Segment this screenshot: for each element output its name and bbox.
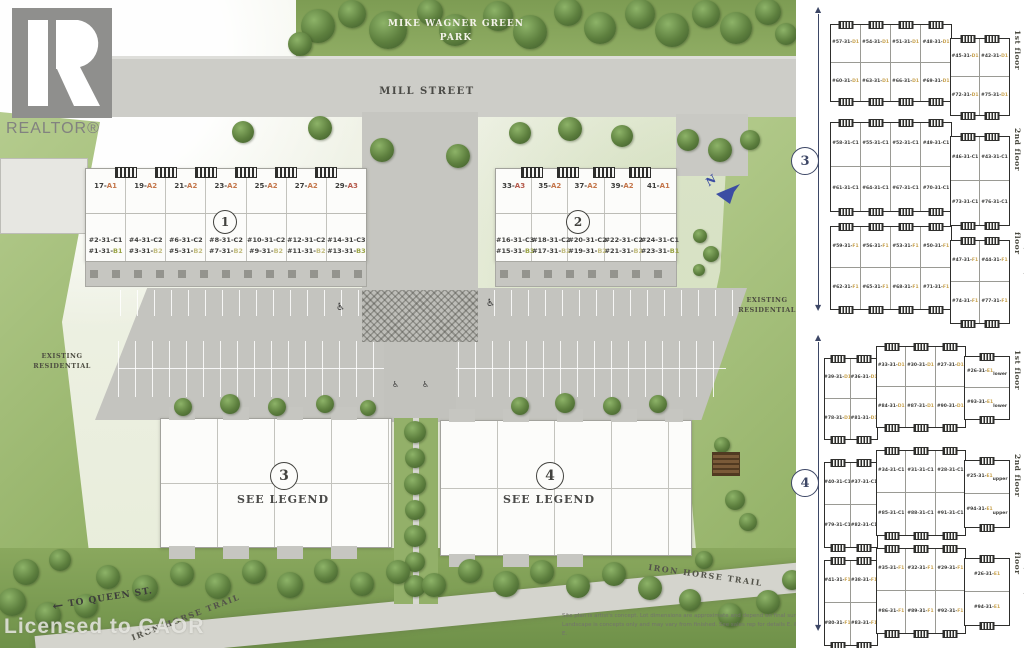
- building-4-number-badge: 4: [536, 462, 564, 490]
- unit-number: #19-31-B2: [568, 246, 603, 257]
- stair-hatch-icon: [593, 167, 615, 178]
- unit-number: #7-31-B2: [206, 246, 245, 257]
- mill-street-label: MILL STREET: [362, 86, 492, 97]
- stair-hatch-icon: [914, 424, 929, 432]
- stair-hatch-icon: [984, 237, 999, 245]
- floorplan-unit-label: #33-31-D1: [877, 347, 906, 387]
- floorplan-unit-label: #34-31-C1: [877, 451, 906, 493]
- stair-hatch-icon: [929, 119, 944, 127]
- stair-hatch-icon: [899, 223, 914, 231]
- stair-hatch-icon: [914, 630, 929, 638]
- floorplan-unit-label: #75-31-D1: [980, 77, 1009, 115]
- stair-hatch-icon: [984, 320, 999, 328]
- existing-building-outline: [0, 158, 88, 234]
- floorplan-cells: #26-31-E1#94-31-E1: [965, 559, 1009, 625]
- floorplan-unit-label: #59-31-F1: [831, 227, 861, 268]
- park-label-line1: MIKE WAGNER GREEN: [356, 18, 556, 32]
- floorplan-unit-label: #45-31-D1: [951, 39, 980, 77]
- unit-number: #9-31-B2: [247, 246, 286, 257]
- floorplan-cells: #33-31-D1#30-31-D1#27-31-D1#84-31-D1#87-…: [877, 347, 965, 427]
- floorplan-unit-label: #27-31-D1: [936, 347, 965, 387]
- stair-hatch-icon: [980, 524, 995, 532]
- floorplan-unit-label: #61-31-C1: [831, 167, 861, 211]
- floorplan-group4-2: #40-31-C1#37-31-C1#79-31-C1#82-31-C1#34-…: [824, 450, 1014, 548]
- stair-hatch-icon: [961, 320, 976, 328]
- stair-hatch-icon: [315, 167, 337, 178]
- floorplan-cells: #35-31-F1#32-31-F1#29-31-F1#86-31-F1#89-…: [877, 549, 965, 633]
- floorplan-unit-label: #60-31-D1: [831, 63, 861, 101]
- building-1-garage-strip: [85, 261, 367, 287]
- floorplan-unit-label: #86-31-F1: [877, 591, 906, 633]
- unit-number: #22-31-C2: [605, 235, 640, 246]
- floorplan-block: #46-31-C1#43-31-C1#73-31-C1#76-31-C1: [950, 136, 1010, 226]
- floorplan-unit-label: #70-31-C1: [921, 167, 951, 211]
- unit-number: #23-31-B1: [641, 246, 676, 257]
- stair-hatch-icon: [275, 167, 297, 178]
- floorplan-cells: #57-31-D1#54-31-D1#51-31-D1#48-31-D1#60-…: [831, 25, 951, 101]
- stair-hatch-icon: [857, 557, 872, 565]
- stair-hatch-icon: [831, 459, 846, 467]
- floor-label: 3rd/ 4th / Roof floor: [1012, 552, 1024, 632]
- disclaimer-text: Site plan is artist's concept. Lot dimen…: [562, 612, 810, 638]
- unit-number: #3-31-B2: [126, 246, 165, 257]
- stair-hatch-icon: [943, 424, 958, 432]
- floorplan-unit-label: #38-31-F1: [851, 561, 877, 603]
- stair-hatch-icon: [943, 447, 958, 455]
- stair-hatch-icon: [929, 306, 944, 314]
- floor-label: 3rd/ 4th / Roof floor: [1012, 232, 1024, 310]
- unit-number: 23-A2: [206, 182, 245, 190]
- floorplan-unit-label: #36-31-D1: [851, 359, 877, 399]
- median-path: [413, 418, 419, 604]
- disclaimer-line1: Site plan is artist's concept. Lot dimen…: [562, 612, 810, 621]
- floorplan-unit-label: #39-31-D1: [825, 359, 851, 399]
- unit-number: #1-31-B1: [86, 246, 125, 257]
- floorplan-unit-label: #88-31-C1: [906, 493, 935, 535]
- floorplan-unit-label: #56-31-F1: [861, 227, 891, 268]
- unit-number: 29-A3: [327, 182, 366, 190]
- building-grid-lines: [441, 421, 691, 555]
- existing-residential-line2: RESIDENTIAL: [736, 306, 798, 316]
- park-label: MIKE WAGNER GREEN PARK: [356, 18, 556, 45]
- unit-lower-numbers: #14-31-C3#13-31-B3: [327, 235, 366, 261]
- stair-hatch-icon: [884, 424, 899, 432]
- stair-hatch-icon: [961, 112, 976, 120]
- stair-hatch-icon: [899, 306, 914, 314]
- floorplan-block: #41-31-F1#38-31-F1#80-31-F1#83-31-F1: [824, 560, 878, 646]
- floorplan-block: #58-31-C1#55-31-C1#52-31-C1#49-31-C1#61-…: [830, 122, 952, 212]
- stair-hatch-icon: [884, 447, 899, 455]
- floorplan-unit-label: #82-31-C1: [851, 505, 877, 547]
- garage-blocks: [169, 546, 383, 559]
- floorplan-unit-label: #43-31-C1: [980, 137, 1009, 181]
- floorplan-unit-label: #26-31-E1lower: [965, 357, 1009, 388]
- unit-number: 25-A2: [247, 182, 286, 190]
- floorplan-group4-3: #41-31-F1#38-31-F1#80-31-F1#83-31-F1#35-…: [824, 548, 1014, 646]
- floorplan-cells: #59-31-F1#56-31-F1#53-31-F1#50-31-F1#62-…: [831, 227, 951, 309]
- floorplan-block: #39-31-D1#36-31-D1#78-31-D1#81-31-D1: [824, 358, 878, 440]
- stair-hatch-icon: [884, 630, 899, 638]
- unit-number: #16-31-C3: [496, 235, 531, 246]
- stair-hatch-icon: [961, 133, 976, 141]
- floorplan-unit-label: #35-31-F1: [877, 549, 906, 591]
- unit-number: #18-31-C2: [532, 235, 567, 246]
- unit-column: 21-A2#6-31-C2#5-31-B2: [166, 169, 206, 261]
- unit-lower-numbers: #16-31-C3#15-31-B3: [496, 235, 531, 261]
- unit-number: #5-31-B2: [166, 246, 205, 257]
- floorplan-unit-label: #55-31-C1: [861, 123, 891, 167]
- entry-driveway: [362, 112, 478, 292]
- floorplan-unit-label: #30-31-D1: [906, 347, 935, 387]
- stair-hatch-icon: [943, 343, 958, 351]
- stair-hatch-icon: [980, 416, 995, 424]
- disclaimer-line2: Landscape is concepts only and may vary …: [562, 621, 810, 639]
- floorplan-unit-label: #74-31-F1: [951, 282, 980, 323]
- floorplan-cells: #47-31-F1#44-31-F1#74-31-F1#77-31-F1: [951, 241, 1009, 323]
- floorplan-unit-label: #73-31-C1: [951, 181, 980, 225]
- unit-number: 17-A1: [86, 182, 125, 190]
- unit-number: 39-A2: [605, 182, 640, 190]
- floorplan-unit-label: #65-31-F1: [861, 268, 891, 309]
- building-2-number-badge: 2: [566, 210, 590, 234]
- stair-hatch-icon: [984, 112, 999, 120]
- floorplan-unit-label: #93-31-E1lower: [965, 388, 1009, 419]
- unit-lower-numbers: #12-31-C2#11-31-B2: [287, 235, 326, 261]
- license-watermark: Licensed to CAOR: [4, 615, 204, 639]
- realtor-logo-text: REALTOR®: [6, 120, 126, 138]
- floorplan-unit-label: #52-31-C1: [891, 123, 921, 167]
- unit-number: #8-31-C2: [206, 235, 245, 246]
- stair-hatch-icon: [869, 223, 884, 231]
- existing-residential-label: EXISTING RESIDENTIAL: [736, 296, 798, 316]
- garage-blocks: [169, 407, 383, 420]
- legend-group-3-badge: 3: [791, 147, 819, 175]
- stair-hatch-icon: [831, 557, 846, 565]
- bracket-arrow-icon: ▲: [815, 6, 821, 14]
- unit-lower-numbers: #6-31-C2#5-31-B2: [166, 235, 205, 261]
- floorplan-unit-label: #53-31-F1: [891, 227, 921, 268]
- unit-number: 19-A2: [126, 182, 165, 190]
- stair-hatch-icon: [929, 21, 944, 29]
- picnic-area: [712, 452, 740, 476]
- floorplan-unit-label: #29-31-F1: [936, 549, 965, 591]
- floorplan-unit-label: #78-31-D1: [825, 399, 851, 439]
- bracket-arrow-icon: ▲: [815, 334, 821, 342]
- building-1-number-badge: 1: [213, 210, 237, 234]
- stair-hatch-icon: [869, 21, 884, 29]
- stair-hatch-icon: [980, 353, 995, 361]
- stair-hatch-icon: [839, 119, 854, 127]
- stair-hatch-icon: [943, 630, 958, 638]
- stair-hatch-icon: [235, 167, 257, 178]
- unit-number: 21-A2: [166, 182, 205, 190]
- north-compass-icon: N: [706, 176, 746, 214]
- floorplan-unit-label: #83-31-F1: [851, 603, 877, 645]
- garage-doors: [90, 270, 362, 278]
- stair-hatch-icon: [899, 119, 914, 127]
- stair-hatch-icon: [914, 343, 929, 351]
- accessible-parking-icon: ♿: [422, 381, 429, 389]
- floorplan-unit-label: #40-31-C1: [825, 463, 851, 505]
- bracket-arrow-icon: ▼: [815, 624, 821, 632]
- see-legend-label: SEE LEGEND: [223, 493, 343, 506]
- stair-hatch-icon: [839, 21, 854, 29]
- stair-hatch-icon: [914, 532, 929, 540]
- floorplan-unit-label: #48-31-D1: [921, 25, 951, 63]
- unit-column: 17-A1#2-31-C1#1-31-B1: [86, 169, 126, 261]
- floorplan-unit-label: #57-31-D1: [831, 25, 861, 63]
- stair-hatch-icon: [980, 555, 995, 563]
- floorplan-cells: #39-31-D1#36-31-D1#78-31-D1#81-31-D1: [825, 359, 877, 439]
- unit-column: 39-A2#22-31-C2#21-31-B2: [605, 169, 641, 261]
- realtor-logo-icon: [12, 8, 112, 118]
- unit-number: #14-31-C3: [327, 235, 366, 246]
- floorplan-unit-label: #68-31-F1: [891, 268, 921, 309]
- stair-hatch-icon: [929, 208, 944, 216]
- stair-hatch-icon: [629, 167, 651, 178]
- stair-hatch-icon: [914, 447, 929, 455]
- stair-hatch-icon: [839, 223, 854, 231]
- accessible-parking-icon: ♿: [336, 303, 345, 313]
- unit-number: 33-A3: [496, 182, 531, 190]
- floorplan-unit-label: #25-31-E1upper: [965, 461, 1009, 494]
- unit-number: #6-31-C2: [166, 235, 205, 246]
- floorplan-cells: #46-31-C1#43-31-C1#73-31-C1#76-31-C1: [951, 137, 1009, 225]
- floorplan-block: #47-31-F1#44-31-F1#74-31-F1#77-31-F1: [950, 240, 1010, 324]
- stair-hatch-icon: [857, 642, 872, 648]
- unit-column: 41-A1#24-31-C1#23-31-B1: [641, 169, 676, 261]
- floorplan-unit-label: #58-31-C1: [831, 123, 861, 167]
- bracket-arrow-icon: ▼: [815, 304, 821, 312]
- floorplan-unit-label: #51-31-D1: [891, 25, 921, 63]
- floorplan-unit-label: #66-31-D1: [891, 63, 921, 101]
- stair-hatch-icon: [899, 21, 914, 29]
- floorplan-unit-label: #42-31-D1: [980, 39, 1009, 77]
- garage-blocks: [449, 409, 683, 422]
- floor-label: 1st floor: [1012, 350, 1022, 426]
- garage-doors: [500, 270, 672, 278]
- unit-lower-numbers: #22-31-C2#21-31-B2: [605, 235, 640, 261]
- stair-hatch-icon: [943, 532, 958, 540]
- floor-label: 2nd floor: [1012, 454, 1022, 534]
- stair-hatch-icon: [914, 545, 929, 553]
- unit-number: #21-31-B2: [605, 246, 640, 257]
- stair-hatch-icon: [869, 208, 884, 216]
- stair-hatch-icon: [839, 208, 854, 216]
- unit-lower-numbers: #2-31-C1#1-31-B1: [86, 235, 125, 261]
- unit-number: 37-A2: [568, 182, 603, 190]
- floorplan-unit-label: #46-31-C1: [951, 137, 980, 181]
- realtor-r-glyph: [12, 8, 112, 118]
- unit-column: 19-A2#4-31-C2#3-31-B2: [126, 169, 166, 261]
- floorplan-cells: #34-31-C1#31-31-C1#28-31-C1#85-31-C1#88-…: [877, 451, 965, 535]
- stair-hatch-icon: [857, 459, 872, 467]
- existing-residential-line2: RESIDENTIAL: [22, 362, 102, 372]
- stair-hatch-icon: [899, 98, 914, 106]
- unit-number: 41-A1: [641, 182, 676, 190]
- stair-hatch-icon: [961, 237, 976, 245]
- floorplan-unit-label: #37-31-C1: [851, 463, 877, 505]
- unit-column: 25-A2#10-31-C2#9-31-B2: [247, 169, 287, 261]
- existing-residential-line1: EXISTING: [22, 352, 102, 362]
- stair-hatch-icon: [884, 343, 899, 351]
- floorplan-cells: #45-31-D1#42-31-D1#72-31-D1#75-31-D1: [951, 39, 1009, 115]
- floorplan-unit-label: #64-31-C1: [861, 167, 891, 211]
- existing-residential-label: EXISTING RESIDENTIAL: [22, 352, 102, 372]
- floorplan-group3-3: #59-31-F1#56-31-F1#53-31-F1#50-31-F1#62-…: [830, 226, 1010, 322]
- unit-lower-numbers: #8-31-C2#7-31-B2: [206, 235, 245, 261]
- stair-hatch-icon: [884, 545, 899, 553]
- unit-lower-numbers: #20-31-C2#19-31-B2: [568, 235, 603, 261]
- stair-hatch-icon: [929, 98, 944, 106]
- floorplan-cells: #40-31-C1#37-31-C1#79-31-C1#82-31-C1: [825, 463, 877, 547]
- unit-number: #24-31-C1: [641, 235, 676, 246]
- existing-residential-line1: EXISTING: [736, 296, 798, 306]
- floor-label: 2nd floor: [1012, 128, 1022, 212]
- unit-lower-numbers: #18-31-C2#17-31-B2: [532, 235, 567, 261]
- floorplan-unit-label: #67-31-C1: [891, 167, 921, 211]
- stair-hatch-icon: [899, 208, 914, 216]
- unit-column: 29-A3#14-31-C3#13-31-B3: [327, 169, 366, 261]
- stair-hatch-icon: [980, 622, 995, 630]
- stair-hatch-icon: [929, 223, 944, 231]
- stair-hatch-icon: [961, 35, 976, 43]
- floorplan-unit-label: #62-31-F1: [831, 268, 861, 309]
- stair-hatch-icon: [980, 457, 995, 465]
- floorplan-block: #26-31-E1#94-31-E1: [964, 558, 1010, 626]
- stair-hatch-icon: [839, 98, 854, 106]
- floorplan-cells: #26-31-E1lower#93-31-E1lower: [965, 357, 1009, 419]
- floorplan-block: #34-31-C1#31-31-C1#28-31-C1#85-31-C1#88-…: [876, 450, 966, 536]
- unit-number: #4-31-C2: [126, 235, 165, 246]
- unit-number: 35-A2: [532, 182, 567, 190]
- building-3-number-badge: 3: [270, 462, 298, 490]
- stair-hatch-icon: [839, 306, 854, 314]
- floorplan-unit-label: #31-31-C1: [906, 451, 935, 493]
- floorplan-unit-label: #71-31-F1: [921, 268, 951, 309]
- unit-number: #13-31-B3: [327, 246, 366, 257]
- floorplan-block: #26-31-E1lower#93-31-E1lower: [964, 356, 1010, 420]
- floorplan-unit-label: #47-31-F1: [951, 241, 980, 282]
- floorplan-unit-label: #54-31-D1: [861, 25, 891, 63]
- unit-number: #2-31-C1: [86, 235, 125, 246]
- floorplan-block: #59-31-F1#56-31-F1#53-31-F1#50-31-F1#62-…: [830, 226, 952, 310]
- floorplan-group3-1: #57-31-D1#54-31-D1#51-31-D1#48-31-D1#60-…: [830, 24, 1010, 114]
- stair-hatch-icon: [857, 355, 872, 363]
- unit-lower-numbers: #10-31-C2#9-31-B2: [247, 235, 286, 261]
- floorplan-unit-label: #32-31-F1: [906, 549, 935, 591]
- stair-hatch-icon: [857, 436, 872, 444]
- crosswalk-paving: [362, 290, 478, 342]
- unit-lower-numbers: #4-31-C2#3-31-B2: [126, 235, 165, 261]
- unit-number: #17-31-B2: [532, 246, 567, 257]
- stair-hatch-icon: [831, 436, 846, 444]
- floorplan-unit-label: #90-31-D1: [936, 387, 965, 427]
- left-arrow-icon: ←: [51, 598, 65, 615]
- floorplan-unit-label: #80-31-F1: [825, 603, 851, 645]
- floorplan-unit-label: #84-31-D1: [877, 387, 906, 427]
- floorplan-unit-label: #26-31-E1: [965, 559, 1009, 592]
- site-plan-image: ♿ ♿ ♿ ♿ 17-A1#2-31-C1#1-31-B119-A2#4-31-…: [0, 0, 1024, 648]
- unit-number: #20-31-C2: [568, 235, 603, 246]
- floor-label: 1st floor: [1012, 30, 1022, 102]
- floorplan-cells: #58-31-C1#55-31-C1#52-31-C1#49-31-C1#61-…: [831, 123, 951, 211]
- floorplan-group4-1: #39-31-D1#36-31-D1#78-31-D1#81-31-D1#33-…: [824, 346, 1014, 440]
- floorplan-cells: #25-31-E1upper#94-31-E1upper: [965, 461, 1009, 527]
- floorplan-block: #33-31-D1#30-31-D1#27-31-D1#84-31-D1#87-…: [876, 346, 966, 428]
- floorplan-unit-label: #41-31-F1: [825, 561, 851, 603]
- stair-hatch-icon: [869, 98, 884, 106]
- stair-hatch-icon: [984, 35, 999, 43]
- stair-hatch-icon: [557, 167, 579, 178]
- floorplan-block: #45-31-D1#42-31-D1#72-31-D1#75-31-D1: [950, 38, 1010, 116]
- stair-hatch-icon: [884, 532, 899, 540]
- stair-hatch-icon: [195, 167, 217, 178]
- floorplan-unit-label: #89-31-F1: [906, 591, 935, 633]
- floorplan-block: #25-31-E1upper#94-31-E1upper: [964, 460, 1010, 528]
- stair-hatch-icon: [869, 306, 884, 314]
- building-4: [440, 420, 692, 556]
- stair-hatch-icon: [869, 119, 884, 127]
- floorplan-unit-label: #81-31-D1: [851, 399, 877, 439]
- floorplan-unit-label: #79-31-C1: [825, 505, 851, 547]
- unit-number: 27-A2: [287, 182, 326, 190]
- unit-lower-numbers: #24-31-C1#23-31-B1: [641, 235, 676, 261]
- unit-column: 27-A2#12-31-C2#11-31-B2: [287, 169, 327, 261]
- floorplan-unit-label: #77-31-F1: [980, 282, 1009, 323]
- floorplan-unit-label: #91-31-C1: [936, 493, 965, 535]
- stair-hatch-icon: [984, 133, 999, 141]
- floorplan-unit-label: #87-31-D1: [906, 387, 935, 427]
- stair-hatch-icon: [115, 167, 137, 178]
- floorplan-unit-label: #44-31-F1: [980, 241, 1009, 282]
- floorplan-unit-label: #69-31-D1: [921, 63, 951, 101]
- stair-hatch-icon: [831, 355, 846, 363]
- garage-blocks: [449, 554, 601, 567]
- park-label-line2: PARK: [356, 32, 556, 46]
- unit-number: #10-31-C2: [247, 235, 286, 246]
- stair-hatch-icon: [831, 642, 846, 648]
- floorplan-group3-2: #58-31-C1#55-31-C1#52-31-C1#49-31-C1#61-…: [830, 122, 1010, 224]
- floorplan-unit-label: #92-31-F1: [936, 591, 965, 633]
- floorplan-unit-label: #50-31-F1: [921, 227, 951, 268]
- floorplan-unit-label: #72-31-D1: [951, 77, 980, 115]
- accessible-parking-icon: ♿: [486, 299, 495, 309]
- side-path: [676, 114, 748, 176]
- unit-number: #11-31-B2: [287, 246, 326, 257]
- stair-hatch-icon: [521, 167, 543, 178]
- floorplan-block: #35-31-F1#32-31-F1#29-31-F1#86-31-F1#89-…: [876, 548, 966, 634]
- floorplan-cells: #41-31-F1#38-31-F1#80-31-F1#83-31-F1: [825, 561, 877, 645]
- floorplan-unit-label: #63-31-D1: [861, 63, 891, 101]
- floorplan-unit-label: #28-31-C1: [936, 451, 965, 493]
- legend-group-4-badge: 4: [791, 469, 819, 497]
- see-legend-label: SEE LEGEND: [489, 493, 609, 506]
- floorplan-unit-label: #85-31-C1: [877, 493, 906, 535]
- floorplan-block: #40-31-C1#37-31-C1#79-31-C1#82-31-C1: [824, 462, 878, 548]
- floorplan-block: #57-31-D1#54-31-D1#51-31-D1#48-31-D1#60-…: [830, 24, 952, 102]
- building-2-garage-strip: [495, 261, 677, 287]
- stair-hatch-icon: [155, 167, 177, 178]
- stair-hatch-icon: [943, 545, 958, 553]
- floorplan-unit-label: #94-31-E1upper: [965, 494, 1009, 527]
- unit-number: #12-31-C2: [287, 235, 326, 246]
- unit-column: 33-A3#16-31-C3#15-31-B3: [496, 169, 532, 261]
- floorplan-unit-label: #94-31-E1: [965, 592, 1009, 625]
- unit-column: 35-A2#18-31-C2#17-31-B2: [532, 169, 568, 261]
- unit-number: #15-31-B3: [496, 246, 531, 257]
- accessible-parking-icon: ♿: [392, 381, 399, 389]
